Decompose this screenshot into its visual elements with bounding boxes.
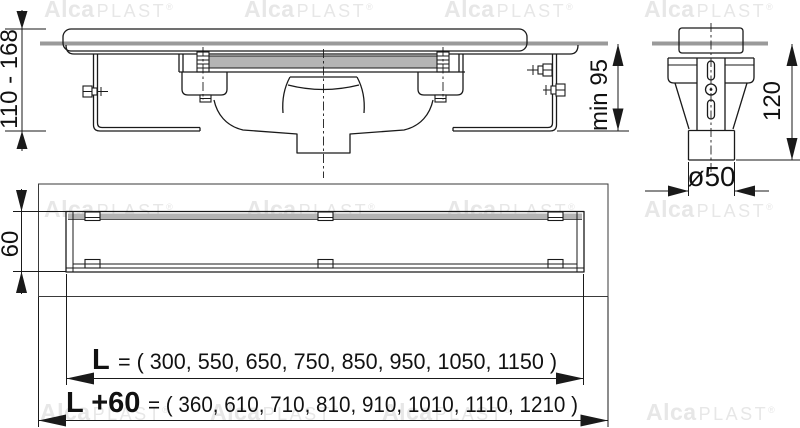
- dim-pipe-diameter: ø50: [645, 161, 769, 197]
- dim-height-range: 110 - 168: [0, 10, 46, 151]
- floor-level-line: [40, 42, 608, 46]
- drawing-svg: 110 - 168 min 95: [0, 0, 800, 428]
- length-l60-label: L +60: [66, 387, 140, 419]
- leg-bolt-right-upper: [527, 64, 552, 76]
- length-l60-values: = ( 360, 610, 710, 810, 910, 1010, 1110,…: [148, 392, 578, 417]
- dim-pipe-diameter-label: ø50: [687, 161, 735, 192]
- outlet-pipe-side: [689, 131, 735, 161]
- installation-outline: [39, 184, 609, 297]
- flange-screw-right: [435, 95, 446, 102]
- body-flange: [66, 45, 578, 54]
- dim-min-depth-label: min 95: [586, 59, 613, 131]
- side-section-view: [652, 23, 768, 172]
- dim-min-depth: min 95: [557, 44, 629, 131]
- dim-length-l: L = ( 300, 550, 650, 750, 850, 950, 1050…: [67, 274, 584, 385]
- channel-frame: [63, 29, 527, 51]
- dim-channel-width: 60: [0, 189, 66, 294]
- dim-side-depth: 120: [736, 44, 800, 160]
- trap-flange-left: [182, 72, 227, 95]
- grate-section: [208, 56, 438, 68]
- leg-bolt-right-lower: [543, 84, 565, 96]
- grate-clips: [85, 212, 563, 268]
- support-leg-left: [94, 54, 201, 131]
- flange-screw-left: [200, 95, 211, 102]
- front-section-view: [40, 29, 608, 178]
- leg-bolt-left: [83, 86, 108, 97]
- plan-view: [39, 184, 609, 297]
- length-l-values: = ( 300, 550, 650, 750, 850, 950, 1050, …: [118, 349, 557, 374]
- dim-height-range-label: 110 - 168: [0, 29, 23, 129]
- trap-flange-right: [418, 72, 463, 95]
- technical-drawing-canvas: AlcaPLAST® AlcaPLAST® AlcaPLAST® AlcaPLA…: [0, 0, 800, 428]
- floor-level-line-side: [652, 42, 768, 46]
- length-l-label: L: [92, 344, 110, 376]
- dim-side-depth-label: 120: [759, 81, 786, 121]
- dim-channel-width-label: 60: [0, 231, 24, 258]
